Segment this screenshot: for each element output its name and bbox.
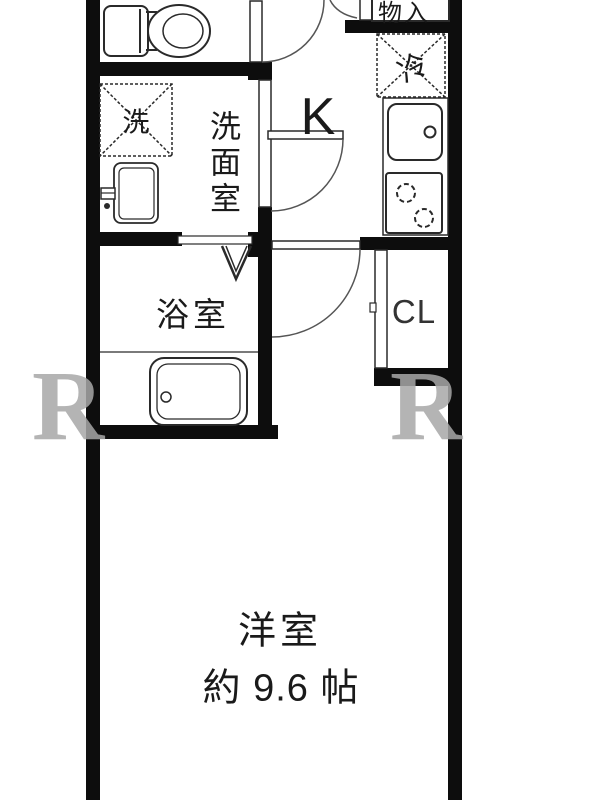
kitchen-label: K bbox=[301, 87, 336, 147]
toilet-bottom-wall bbox=[86, 62, 261, 76]
bathtub-icon bbox=[150, 358, 247, 425]
washer-label: 洗 bbox=[123, 101, 150, 140]
washroom-label: 洗面室 bbox=[200, 110, 245, 218]
closet-door bbox=[370, 250, 387, 368]
kitchen-bottom-wall bbox=[360, 237, 448, 250]
entrance-door-arc bbox=[330, 0, 357, 18]
bath-folding-door bbox=[178, 236, 252, 279]
bath-right-wall bbox=[258, 207, 272, 437]
storage-label: 物入 bbox=[378, 0, 430, 28]
room-door bbox=[272, 241, 360, 337]
bath-label: 浴室 bbox=[156, 288, 230, 336]
room-name-label: 洋室 bbox=[238, 600, 322, 655]
bath-bottom-wall bbox=[86, 425, 278, 439]
floor-plan: 物入 冷 K 洗 洗面室 浴室 CL 洋室 約 9.6 帖 R R bbox=[0, 0, 600, 800]
washroom-bottom-wall bbox=[86, 232, 182, 246]
toilet-icon bbox=[104, 5, 210, 57]
room-size-label: 約 9.6 帖 bbox=[203, 657, 360, 712]
vanity-sink-icon bbox=[101, 163, 158, 223]
closet-label: CL bbox=[392, 293, 436, 331]
toilet-door bbox=[250, 0, 324, 62]
toilet-corner-block bbox=[248, 62, 272, 80]
kitchen-counter bbox=[383, 98, 448, 235]
watermark-letter-right: R bbox=[390, 348, 462, 463]
watermark-letter-left: R bbox=[32, 348, 104, 463]
